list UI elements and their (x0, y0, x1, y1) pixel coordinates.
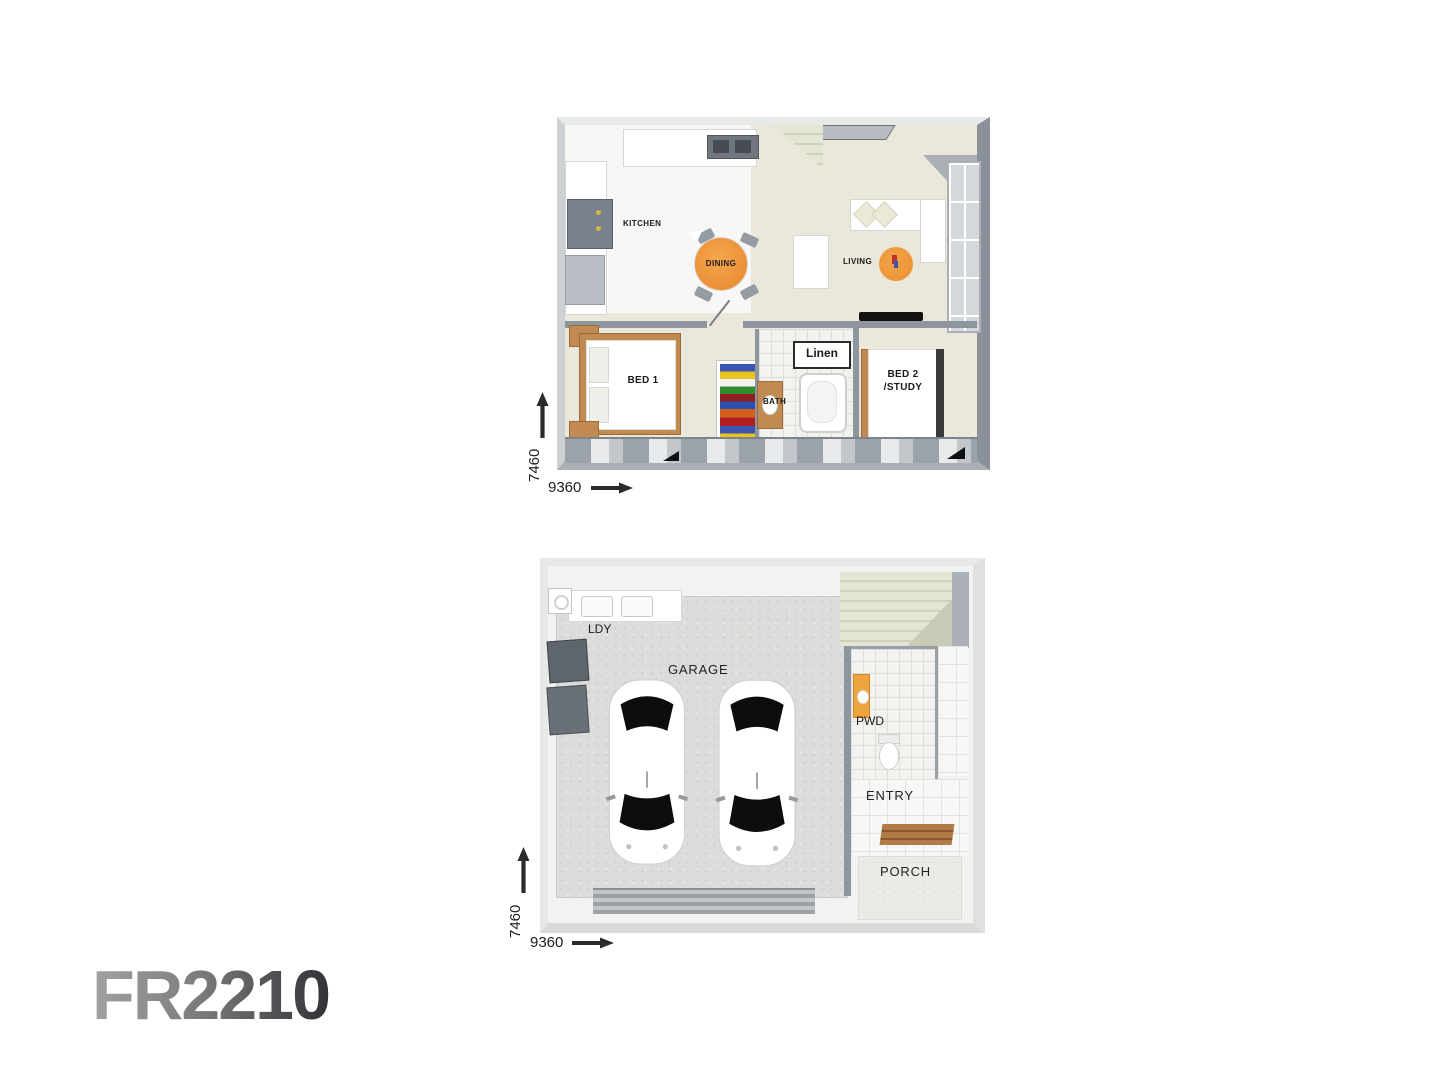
fridge-icon (565, 255, 605, 305)
sofa-chaise-icon (920, 199, 946, 263)
bed2-label-line2: /STUDY (868, 382, 938, 393)
car-icon (606, 678, 688, 866)
coffee-table-icon (793, 235, 829, 289)
plan-code: FR2210 (92, 955, 329, 1035)
entry-label: ENTRY (866, 788, 914, 803)
floorplan-sheet: KITCHEN DINING LIVING (0, 0, 1440, 1080)
toilet-bowl-icon (879, 742, 899, 770)
garage-label: GARAGE (668, 662, 728, 677)
bed2-icon (868, 349, 940, 439)
lower-stairs (840, 572, 952, 646)
lower-depth-dimension: 7460 (507, 896, 524, 938)
cooktop-icon (707, 135, 759, 159)
right-arrow-icon (572, 937, 614, 949)
bed1-label: BED 1 (605, 375, 681, 386)
dining-table-icon: DINING (694, 237, 748, 291)
upper-depth-dimension: 7460 (526, 440, 543, 482)
living-label: LIVING (843, 257, 872, 266)
entry-steps-icon (880, 824, 955, 845)
upper-floor-plan: KITCHEN DINING LIVING (557, 117, 990, 470)
skylight-icon (812, 125, 895, 140)
lower-width-dimension: 9360 (530, 934, 563, 951)
bathtub-icon (799, 373, 847, 433)
dining-label: DINING (695, 259, 747, 268)
bath-label: BATH (763, 397, 786, 406)
pwd-label: PWD (856, 714, 884, 728)
right-arrow-icon (591, 482, 633, 494)
car-icon (716, 678, 798, 868)
garage-door (593, 888, 815, 914)
laundry-label: LDY (588, 622, 611, 636)
lower-floor-plan: LDY GARAGE (540, 558, 985, 933)
washer-icon (548, 588, 572, 614)
mid-wall (565, 321, 977, 328)
linen-cupboard: Linen (793, 341, 851, 369)
bed2-wall (853, 328, 859, 455)
kitchen-label: KITCHEN (623, 219, 661, 228)
pwd-vanity-icon (853, 674, 870, 718)
storage-shelf-icon (546, 685, 589, 736)
porch-label: PORCH (880, 864, 931, 879)
garage-floor (556, 596, 848, 898)
deck-strip (565, 437, 977, 463)
upper-stairs (773, 125, 823, 169)
laundry-bench (568, 590, 682, 622)
linen-label: Linen (795, 346, 849, 360)
entry-floor (938, 646, 968, 776)
bed2-label-line1: BED 2 (868, 369, 938, 380)
tv-icon (859, 312, 923, 321)
stove-icon (567, 199, 613, 249)
window-wall (947, 161, 981, 333)
upper-width-dimension: 9360 (548, 479, 581, 496)
living-rug-icon (879, 247, 913, 281)
storage-shelf-icon (547, 639, 590, 684)
bed2-headboard-icon (936, 349, 944, 437)
up-arrow-icon (517, 847, 530, 893)
up-arrow-icon (536, 392, 549, 438)
stairs-side-wall (952, 572, 969, 648)
